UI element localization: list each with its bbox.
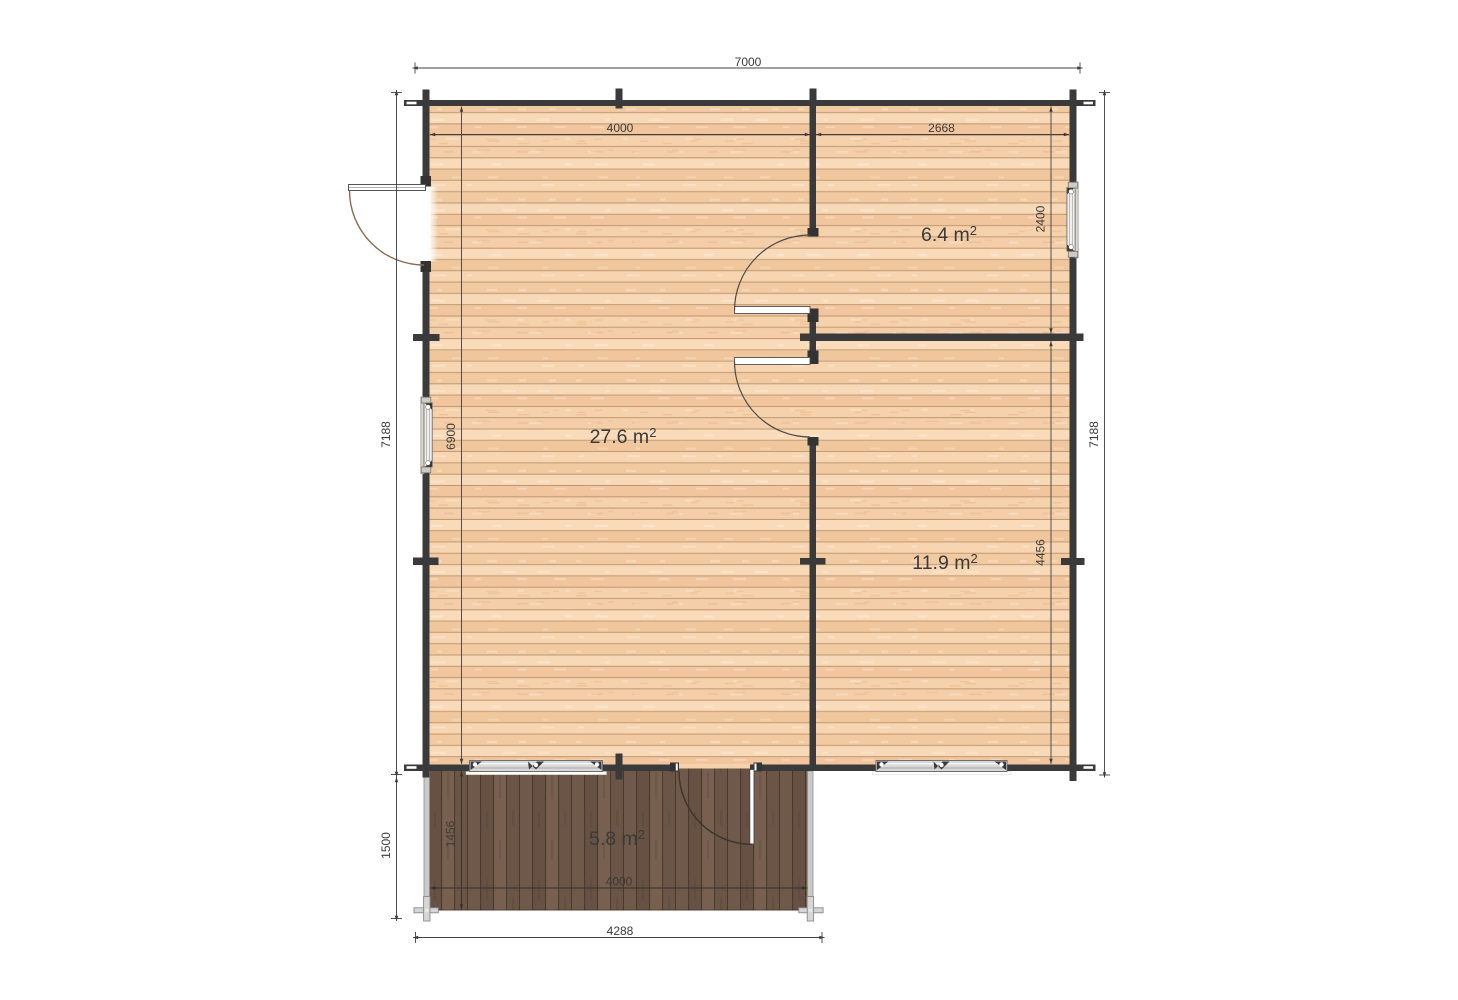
svg-text:1500: 1500 bbox=[379, 832, 393, 859]
svg-text:7000: 7000 bbox=[735, 55, 762, 69]
svg-text:6.4 m2: 6.4 m2 bbox=[921, 223, 977, 246]
svg-text:4456: 4456 bbox=[1034, 539, 1048, 566]
svg-text:27.6 m2: 27.6 m2 bbox=[590, 425, 657, 448]
svg-text:2668: 2668 bbox=[928, 121, 955, 135]
svg-text:4288: 4288 bbox=[607, 924, 634, 938]
svg-text:4000: 4000 bbox=[606, 875, 633, 889]
svg-text:11.9 m2: 11.9 m2 bbox=[912, 551, 977, 574]
svg-text:4000: 4000 bbox=[607, 121, 634, 135]
svg-text:7188: 7188 bbox=[379, 421, 393, 448]
svg-text:1456: 1456 bbox=[444, 820, 458, 847]
svg-text:2400: 2400 bbox=[1034, 205, 1048, 232]
svg-text:7188: 7188 bbox=[1087, 421, 1101, 448]
svg-text:5.8 m2: 5.8 m2 bbox=[589, 827, 645, 850]
svg-text:6900: 6900 bbox=[444, 423, 458, 450]
